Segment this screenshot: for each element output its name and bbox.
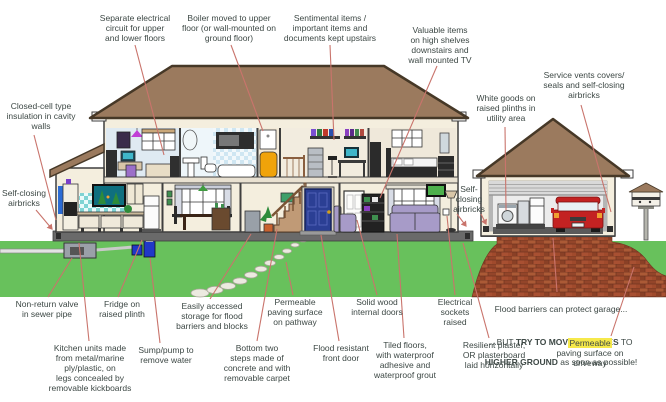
hot-water-cylinder	[260, 152, 277, 177]
washing-machine	[498, 204, 517, 224]
label-non-return-valve: Non-return valve in sewer pipe	[8, 299, 86, 319]
label-sump-pump: Sump/pump to remove water	[130, 345, 202, 365]
fridge-plinth	[142, 229, 161, 232]
label-internal-doors: Solid wood internal doors	[339, 297, 415, 317]
label-storage: Easily accessed storage for flood barrie…	[167, 301, 257, 331]
garage-roof	[477, 119, 629, 176]
airbrick-left	[56, 233, 61, 239]
fridge	[144, 196, 159, 229]
oven	[64, 202, 77, 216]
label-white-goods: White goods on raised plinths in utility…	[464, 93, 549, 123]
flood-barriers-line1: Flood barriers can protect garage...	[471, 304, 651, 314]
label-kitchen-units: Kitchen units made from metal/marine ply…	[46, 343, 134, 393]
label-insulation: Closed-cell type insulation in cavity wa…	[0, 101, 84, 131]
mirror	[440, 133, 449, 153]
main-house	[50, 66, 473, 241]
label-paving-driveway: Permeable paving surface on driveway	[544, 338, 636, 368]
white-goods-plinth	[496, 224, 545, 229]
airbrick-right	[465, 233, 470, 239]
understairs-storage-door	[245, 211, 260, 232]
fridge-freezer	[530, 198, 544, 224]
floor-divider	[104, 177, 458, 183]
highlighted-word: Permeable	[568, 338, 611, 348]
flood-resilient-house-diagram: Separate electrical circuit for upper an…	[0, 0, 666, 402]
filing-cabinet	[308, 148, 323, 177]
garage-airbrick-left	[483, 226, 489, 232]
label-front-door: Flood resistant front door	[309, 343, 373, 363]
living-room	[334, 184, 457, 232]
fish-tank	[93, 185, 125, 206]
label-airbricks-mid: Self- closing airbricks	[444, 184, 494, 214]
main-roof	[90, 66, 468, 118]
car	[551, 197, 605, 232]
label-paving-pathway: Permeable paving surface on pathway	[255, 297, 335, 327]
garage	[473, 119, 633, 237]
birdhouse	[629, 183, 663, 240]
garage-airbrick-right	[607, 226, 613, 232]
label-airbricks-left: Self-closing airbricks	[0, 188, 54, 208]
boiler	[260, 130, 276, 149]
label-sentimental-items: Sentimental items / important items and …	[269, 13, 391, 43]
label-bottom-steps: Bottom two steps made of concrete and wi…	[212, 343, 302, 383]
label-tiled-floors: Tiled floors, with waterproof adhesive a…	[367, 340, 443, 380]
label-valuable-items: Valuable items on high shelves downstair…	[395, 25, 485, 65]
sump-pump-small	[132, 245, 142, 255]
sewer-pipe	[0, 249, 64, 253]
label-fridge: Fridge on raised plinth	[91, 299, 153, 319]
